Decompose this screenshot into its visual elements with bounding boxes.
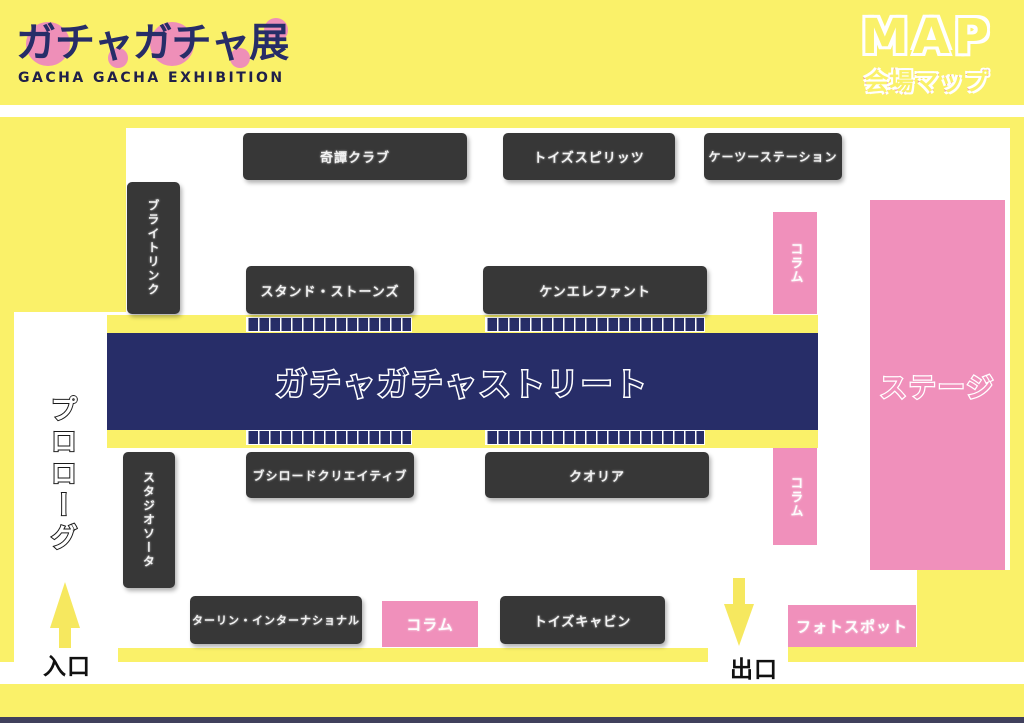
stage-area-label: ステージ bbox=[880, 366, 995, 405]
booth-bushiroad-creative-label: ブシロードクリエイティブ bbox=[252, 467, 407, 484]
column-area-floor-label: コラム bbox=[406, 614, 454, 635]
booth-stand-stones: スタンド・ストーンズ bbox=[246, 266, 414, 314]
machine-row-bottom-right bbox=[485, 430, 705, 445]
booth-studio-sota: スタジオソータ bbox=[123, 452, 175, 588]
booth-bright-link-label: ブライトリンク bbox=[145, 199, 162, 297]
column-area-top-label: コラム bbox=[786, 242, 805, 284]
booth-qualia-label: クオリア bbox=[569, 466, 625, 485]
booth-ken-elephant-label: ケンエレファント bbox=[539, 281, 651, 300]
walkway-floor bbox=[118, 648, 708, 662]
bottom-white-strip bbox=[0, 662, 1024, 684]
booth-tarlin-international: ターリン・インターナショナル bbox=[190, 596, 362, 644]
entrance-arrow-up-icon bbox=[50, 582, 80, 648]
column-area-floor: コラム bbox=[382, 601, 478, 647]
logo-subtitle: GACHA GACHA EXHIBITION bbox=[18, 70, 285, 86]
exit-arrow-down-icon bbox=[724, 578, 754, 646]
walkway-top bbox=[107, 315, 818, 333]
gacha-street-label: ガチャガチャストリート bbox=[276, 359, 649, 404]
footer-line bbox=[0, 717, 1024, 723]
prologue-corridor-label: プロローグ bbox=[30, 380, 92, 570]
photo-spot-area-label: フォトスポット bbox=[796, 616, 908, 637]
booth-k2-station-label: ケーツーステーション bbox=[709, 148, 838, 165]
booth-k2-station: ケーツーステーション bbox=[704, 133, 842, 180]
machine-row-bottom-left bbox=[246, 430, 412, 445]
booth-toys-cabin-label: トイズキャビン bbox=[534, 611, 632, 630]
booth-toys-spirits: トイズスピリッツ bbox=[503, 133, 675, 180]
photo-spot-area: フォトスポット bbox=[788, 605, 916, 647]
booth-kitan-club-label: 奇譚クラブ bbox=[320, 147, 390, 166]
booth-toys-spirits-label: トイズスピリッツ bbox=[533, 147, 645, 166]
column-area-bottom-label: コラム bbox=[786, 476, 805, 518]
booth-tarlin-international-label: ターリン・インターナショナル bbox=[192, 612, 360, 628]
machine-row-top-left bbox=[246, 317, 412, 332]
wall-top-left bbox=[14, 128, 126, 312]
booth-bushiroad-creative: ブシロードクリエイティブ bbox=[246, 452, 414, 498]
entrance-label: 入口 bbox=[35, 647, 99, 681]
header-divider bbox=[0, 105, 1024, 117]
booth-studio-sota-label: スタジオソータ bbox=[141, 471, 158, 569]
stage-area: ステージ bbox=[870, 200, 1005, 570]
walkway-bottom bbox=[107, 430, 818, 448]
column-area-bottom: コラム bbox=[773, 448, 817, 545]
walkway-photo-spot bbox=[788, 647, 948, 662]
map-heading: MAP 会場マップ bbox=[848, 12, 1006, 97]
booth-stand-stones-label: スタンド・ストーンズ bbox=[260, 281, 399, 300]
column-area-top: コラム bbox=[773, 212, 817, 314]
exit-label: 出口 bbox=[722, 650, 786, 684]
booth-toys-cabin: トイズキャビン bbox=[500, 596, 665, 644]
booth-bright-link: ブライトリンク bbox=[127, 182, 180, 314]
map-subtitle: 会場マップ bbox=[848, 62, 1006, 97]
booth-ken-elephant: ケンエレファント bbox=[483, 266, 707, 314]
booth-qualia: クオリア bbox=[485, 452, 709, 498]
map-title: MAP bbox=[848, 12, 1006, 62]
booth-kitan-club: 奇譚クラブ bbox=[243, 133, 467, 180]
exhibition-logo: ガチャガチャ展 GACHA GACHA EXHIBITION bbox=[16, 8, 316, 104]
machine-row-top-right bbox=[485, 317, 705, 332]
logo-title: ガチャガチャ展 bbox=[16, 10, 288, 68]
gacha-street: ガチャガチャストリート bbox=[107, 333, 818, 430]
venue-map-page: ガチャガチャ展 GACHA GACHA EXHIBITION MAP 会場マップ… bbox=[0, 0, 1024, 723]
